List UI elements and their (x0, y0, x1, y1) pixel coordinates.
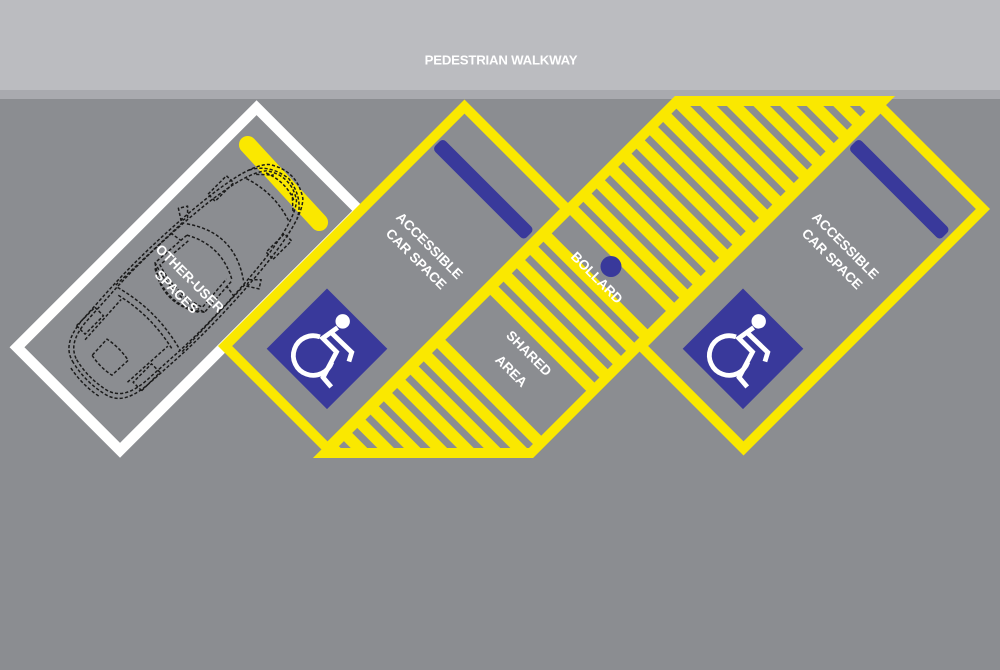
svg-text:PEDESTRIAN WALKWAY: PEDESTRIAN WALKWAY (425, 53, 578, 68)
